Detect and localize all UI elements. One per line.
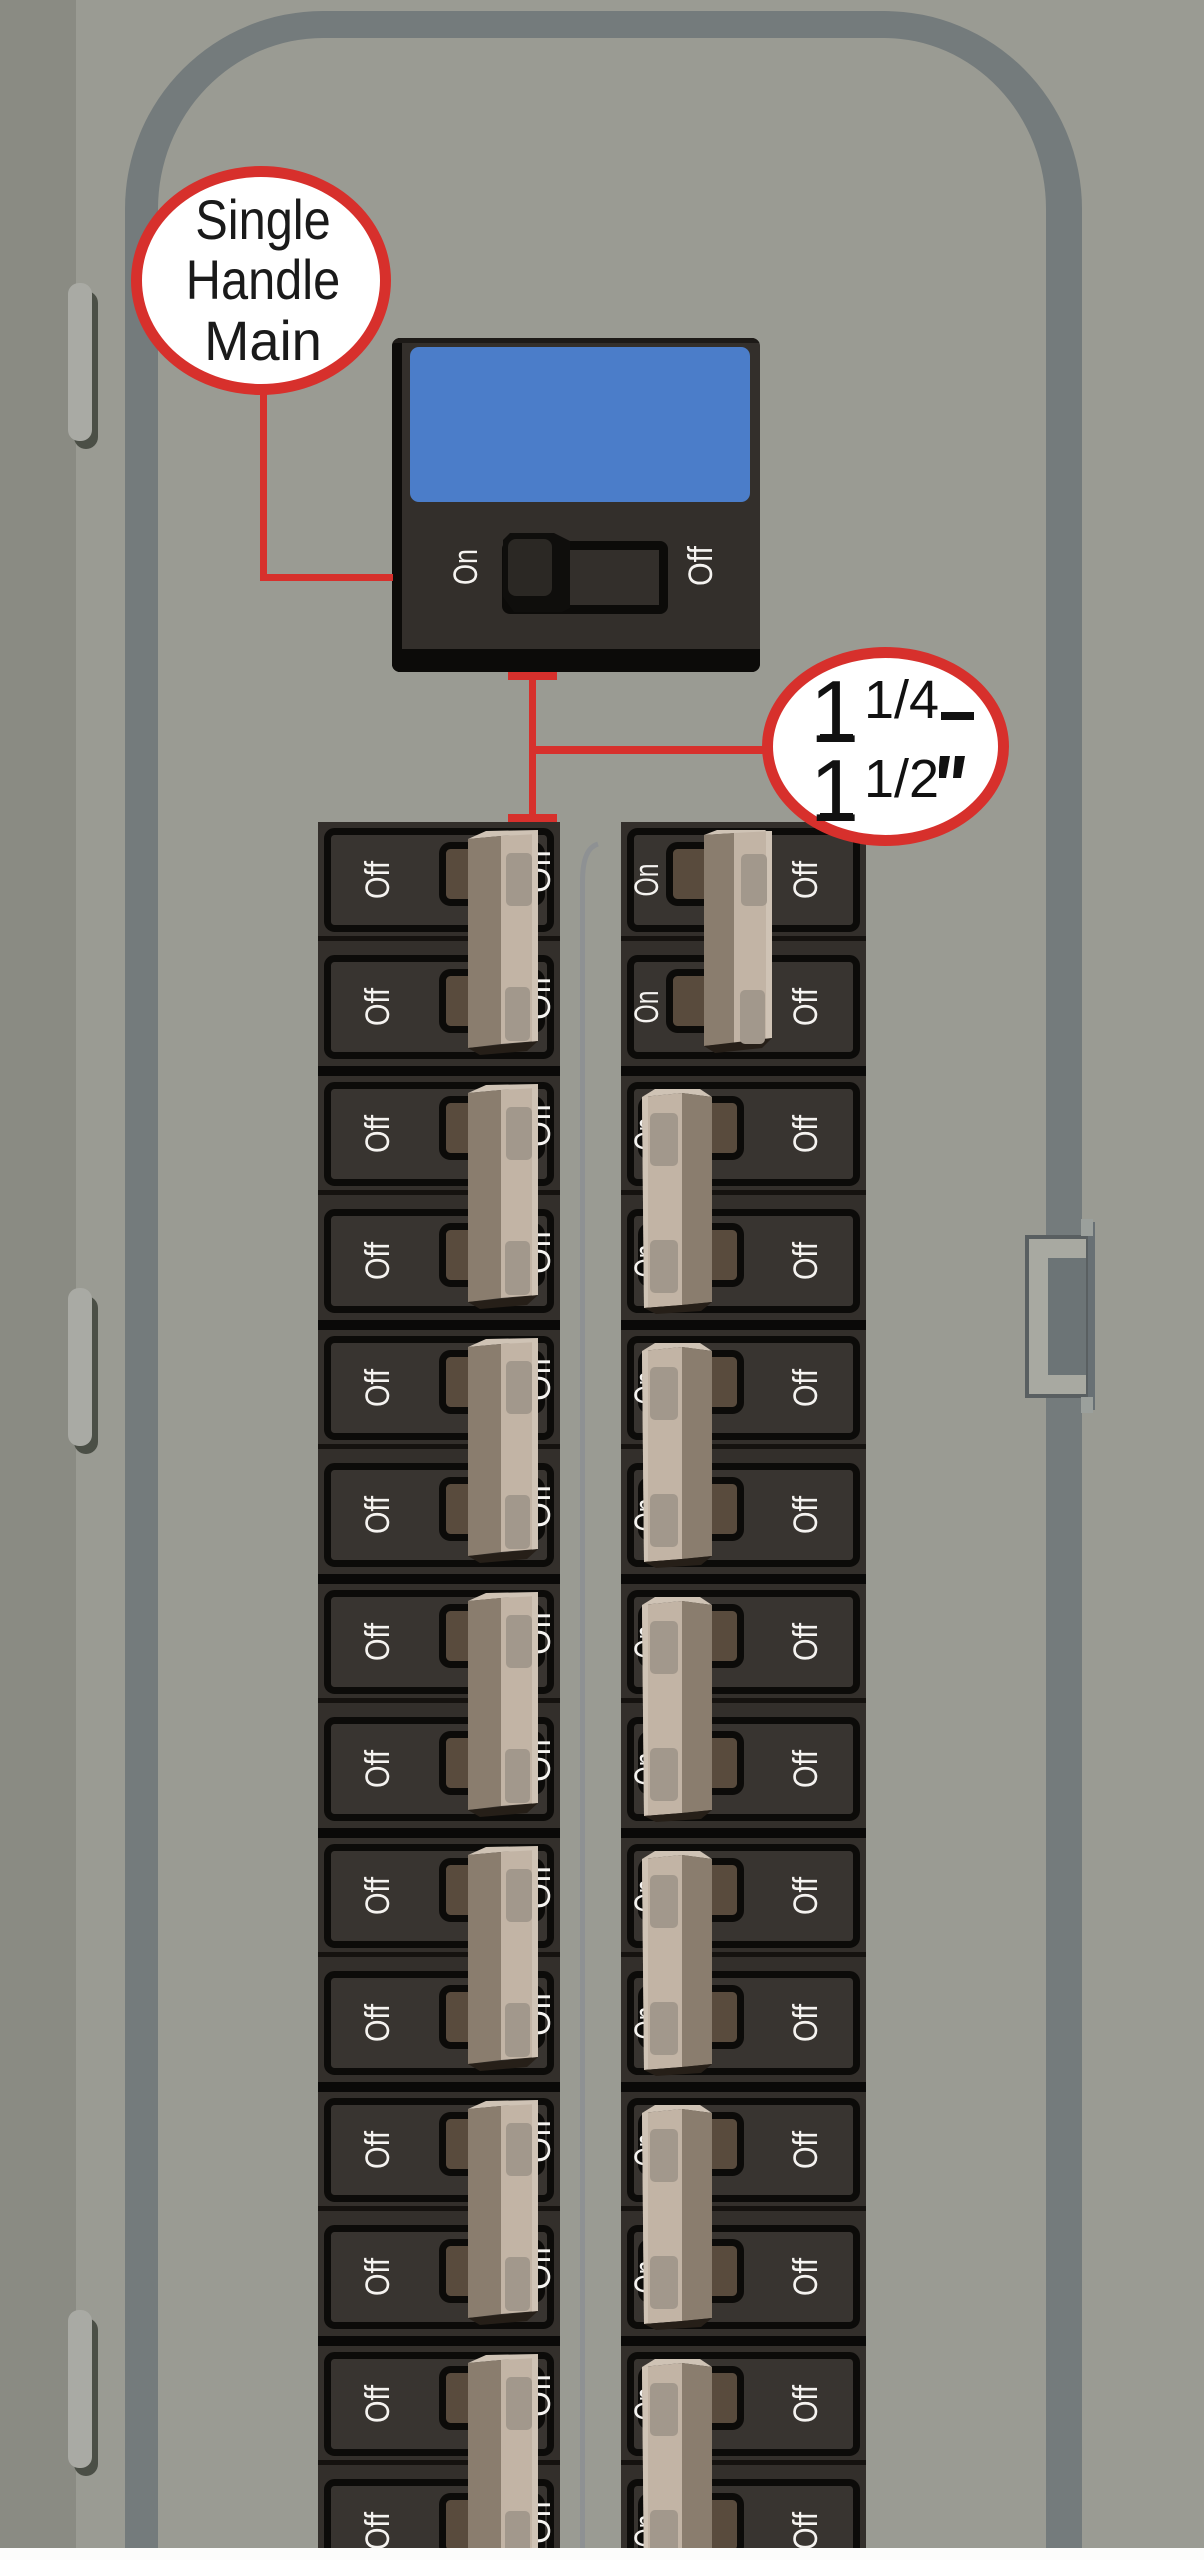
svg-text:Off: Off	[359, 1242, 397, 1280]
svg-text:Off: Off	[359, 1623, 397, 1661]
svg-text:Off: Off	[787, 1369, 825, 1407]
svg-text:Off: Off	[787, 1242, 825, 1280]
svg-text:Off: Off	[787, 2004, 825, 2042]
svg-text:Off: Off	[359, 2512, 397, 2548]
svg-text:Off: Off	[787, 1623, 825, 1661]
svg-text:Off: Off	[359, 861, 397, 899]
svg-text:Off: Off	[787, 1115, 825, 1153]
svg-text:Off: Off	[787, 2512, 825, 2548]
svg-text:Off: Off	[359, 1115, 397, 1153]
svg-text:Off: Off	[787, 861, 825, 899]
svg-text:Off: Off	[787, 1877, 825, 1915]
svg-text:Off: Off	[682, 546, 720, 586]
svg-text:Off: Off	[787, 1496, 825, 1534]
svg-text:Off: Off	[359, 2004, 397, 2042]
svg-text:Off: Off	[359, 1496, 397, 1534]
svg-text:Off: Off	[359, 2385, 397, 2423]
svg-text:Off: Off	[359, 2258, 397, 2296]
svg-text:On: On	[628, 991, 666, 1024]
svg-text:Off: Off	[787, 2131, 825, 2169]
svg-text:Off: Off	[787, 2385, 825, 2423]
svg-text:Off: Off	[359, 2131, 397, 2169]
svg-text:Off: Off	[359, 1369, 397, 1407]
svg-text:Off: Off	[359, 988, 397, 1026]
svg-text:Off: Off	[787, 1750, 825, 1788]
svg-text:Off: Off	[359, 1877, 397, 1915]
svg-text:Off: Off	[359, 1750, 397, 1788]
svg-text:On: On	[628, 864, 666, 897]
svg-text:Off: Off	[787, 988, 825, 1026]
svg-text:Off: Off	[787, 2258, 825, 2296]
svg-text:On: On	[447, 549, 485, 585]
